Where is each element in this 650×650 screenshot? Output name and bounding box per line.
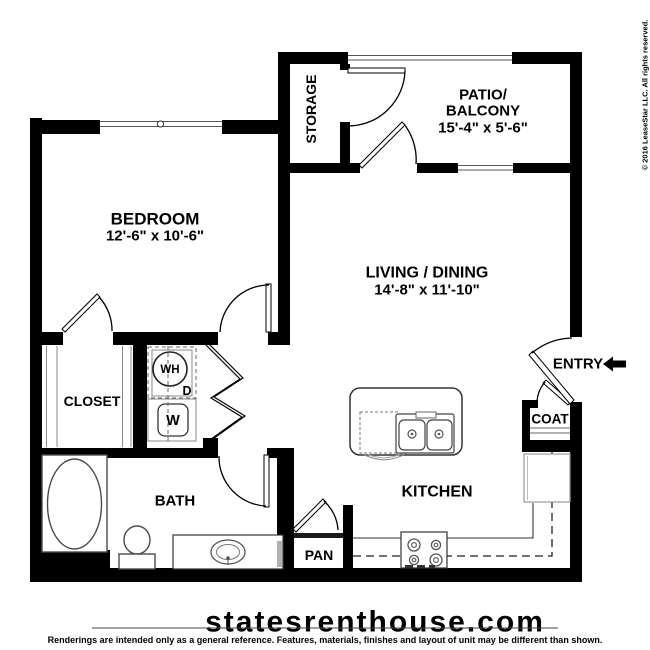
double-sink (396, 412, 454, 453)
patio-label-line2: BALCONY (446, 103, 520, 120)
bedroom-label: BEDROOM (111, 210, 200, 229)
bedroom-dims: 12'-6" x 10'-6" (106, 228, 204, 245)
living-dining-dims: 14'-8" x 11'-10" (374, 282, 480, 299)
coat-shelf (530, 428, 570, 433)
pantry-label: PAN (305, 547, 334, 563)
storage-door (348, 68, 405, 126)
floor-plan: BEDROOM 12'-6" x 10'-6" STORAGE PATIO/ B… (0, 0, 650, 650)
pantry-shelf (294, 533, 343, 538)
bedroom-window (100, 118, 222, 135)
refrigerator (524, 454, 570, 502)
bath-label: BATH (155, 493, 196, 510)
bathtub (42, 455, 107, 552)
dryer-label: D (182, 384, 191, 398)
kitchen-counter (353, 452, 552, 556)
patio-door (359, 122, 416, 168)
kitchen-island (350, 388, 462, 460)
dishwasher (360, 412, 398, 453)
floor-plan-svg: BEDROOM 12'-6" x 10'-6" STORAGE PATIO/ B… (0, 0, 650, 650)
washer-label: W (166, 413, 180, 429)
storage-label: STORAGE (303, 75, 319, 144)
closet-door (62, 294, 112, 332)
kitchen-label: KITCHEN (401, 484, 472, 501)
patio-label-line1: PATIO/ (459, 87, 508, 104)
water-heater-label: WH (160, 364, 179, 376)
bath-vanity-sink (173, 535, 283, 569)
bath-door (219, 455, 269, 507)
disclaimer-text: Renderings are intended only as a genera… (48, 635, 603, 645)
living-dining-label: LIVING / DINING (366, 265, 489, 282)
toilet (119, 526, 155, 569)
patio-dims: 15'-4" x 5'-6" (438, 120, 528, 137)
entry-label: ENTRY (553, 356, 603, 373)
pantry-door (293, 499, 338, 532)
coat-label: COAT (531, 412, 569, 427)
stove (401, 532, 447, 568)
copyright-text: © 2016 LeaseStar LLC. All rights reserve… (641, 20, 650, 171)
entry-arrow-icon (603, 357, 626, 372)
laundry-bifold-doors (206, 344, 245, 442)
patio-top-window (348, 52, 512, 64)
bedroom-door (220, 284, 271, 332)
patio-bottom-window (458, 163, 513, 173)
watermark: statesrenthouse.com (205, 606, 545, 639)
closet-label: CLOSET (64, 393, 121, 409)
